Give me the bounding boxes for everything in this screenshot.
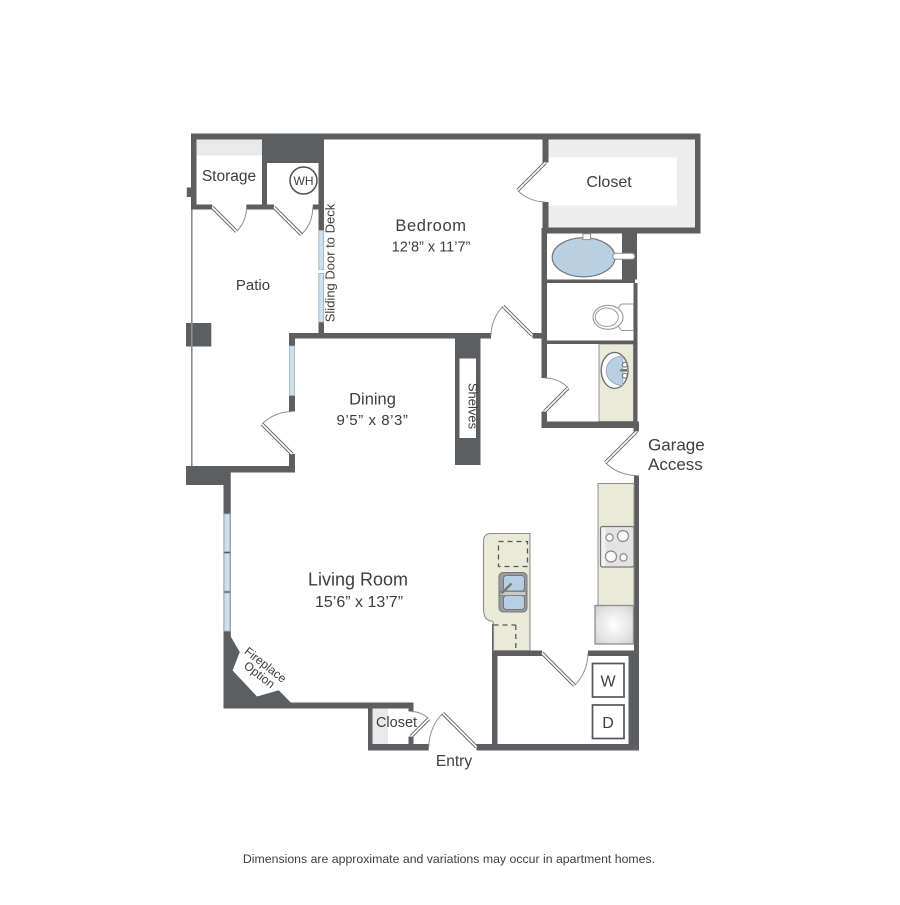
svg-text:Sliding Door to Deck: Sliding Door to Deck bbox=[323, 203, 338, 322]
svg-text:Dining: Dining bbox=[349, 391, 396, 409]
svg-text:Closet: Closet bbox=[376, 715, 417, 731]
svg-text:W: W bbox=[600, 674, 616, 691]
svg-text:Dimensions are approximate and: Dimensions are approximate and variation… bbox=[243, 852, 655, 866]
svg-text:9’5” x 8’3”: 9’5” x 8’3” bbox=[337, 412, 409, 429]
svg-text:Living Room: Living Room bbox=[308, 570, 408, 590]
svg-text:Entry: Entry bbox=[436, 753, 472, 770]
svg-text:Access: Access bbox=[648, 455, 703, 474]
svg-text:WH: WH bbox=[294, 174, 314, 188]
svg-text:12’8” x 11’7”: 12’8” x 11’7” bbox=[392, 240, 471, 256]
svg-text:Bedroom: Bedroom bbox=[395, 217, 466, 235]
svg-text:Closet: Closet bbox=[586, 174, 632, 191]
svg-text:Shelves: Shelves bbox=[466, 383, 481, 430]
svg-text:Garage: Garage bbox=[648, 436, 705, 455]
svg-text:D: D bbox=[602, 715, 614, 732]
svg-text:Storage: Storage bbox=[202, 168, 256, 185]
svg-text:15’6” x 13’7”: 15’6” x 13’7” bbox=[315, 594, 403, 611]
svg-text:Patio: Patio bbox=[236, 277, 270, 294]
